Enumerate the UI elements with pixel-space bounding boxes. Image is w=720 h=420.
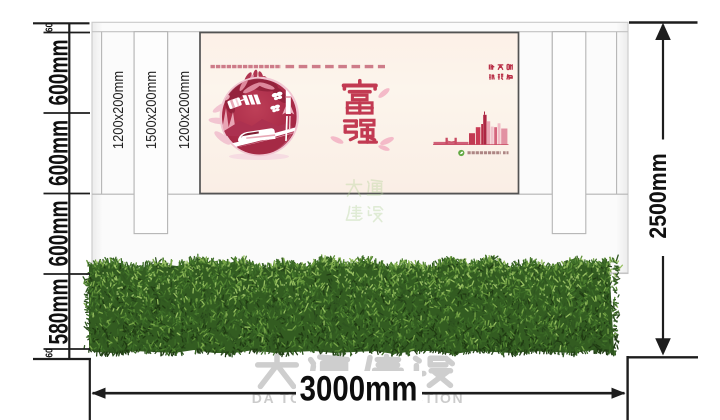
svg-text:1200x200mm: 1200x200mm bbox=[110, 71, 126, 149]
svg-text:600mm: 600mm bbox=[43, 39, 73, 105]
svg-text:580mm: 580mm bbox=[43, 278, 73, 344]
svg-text:60: 60 bbox=[44, 23, 56, 32]
svg-text:600mm: 600mm bbox=[43, 200, 73, 266]
svg-text:3000mm: 3000mm bbox=[300, 369, 418, 408]
svg-text:1200x200mm: 1200x200mm bbox=[176, 71, 192, 149]
svg-text:2500mm: 2500mm bbox=[644, 153, 672, 238]
svg-text:600mm: 600mm bbox=[43, 120, 73, 186]
svg-text:1500x200mm: 1500x200mm bbox=[143, 71, 159, 149]
svg-text:60: 60 bbox=[44, 348, 56, 357]
